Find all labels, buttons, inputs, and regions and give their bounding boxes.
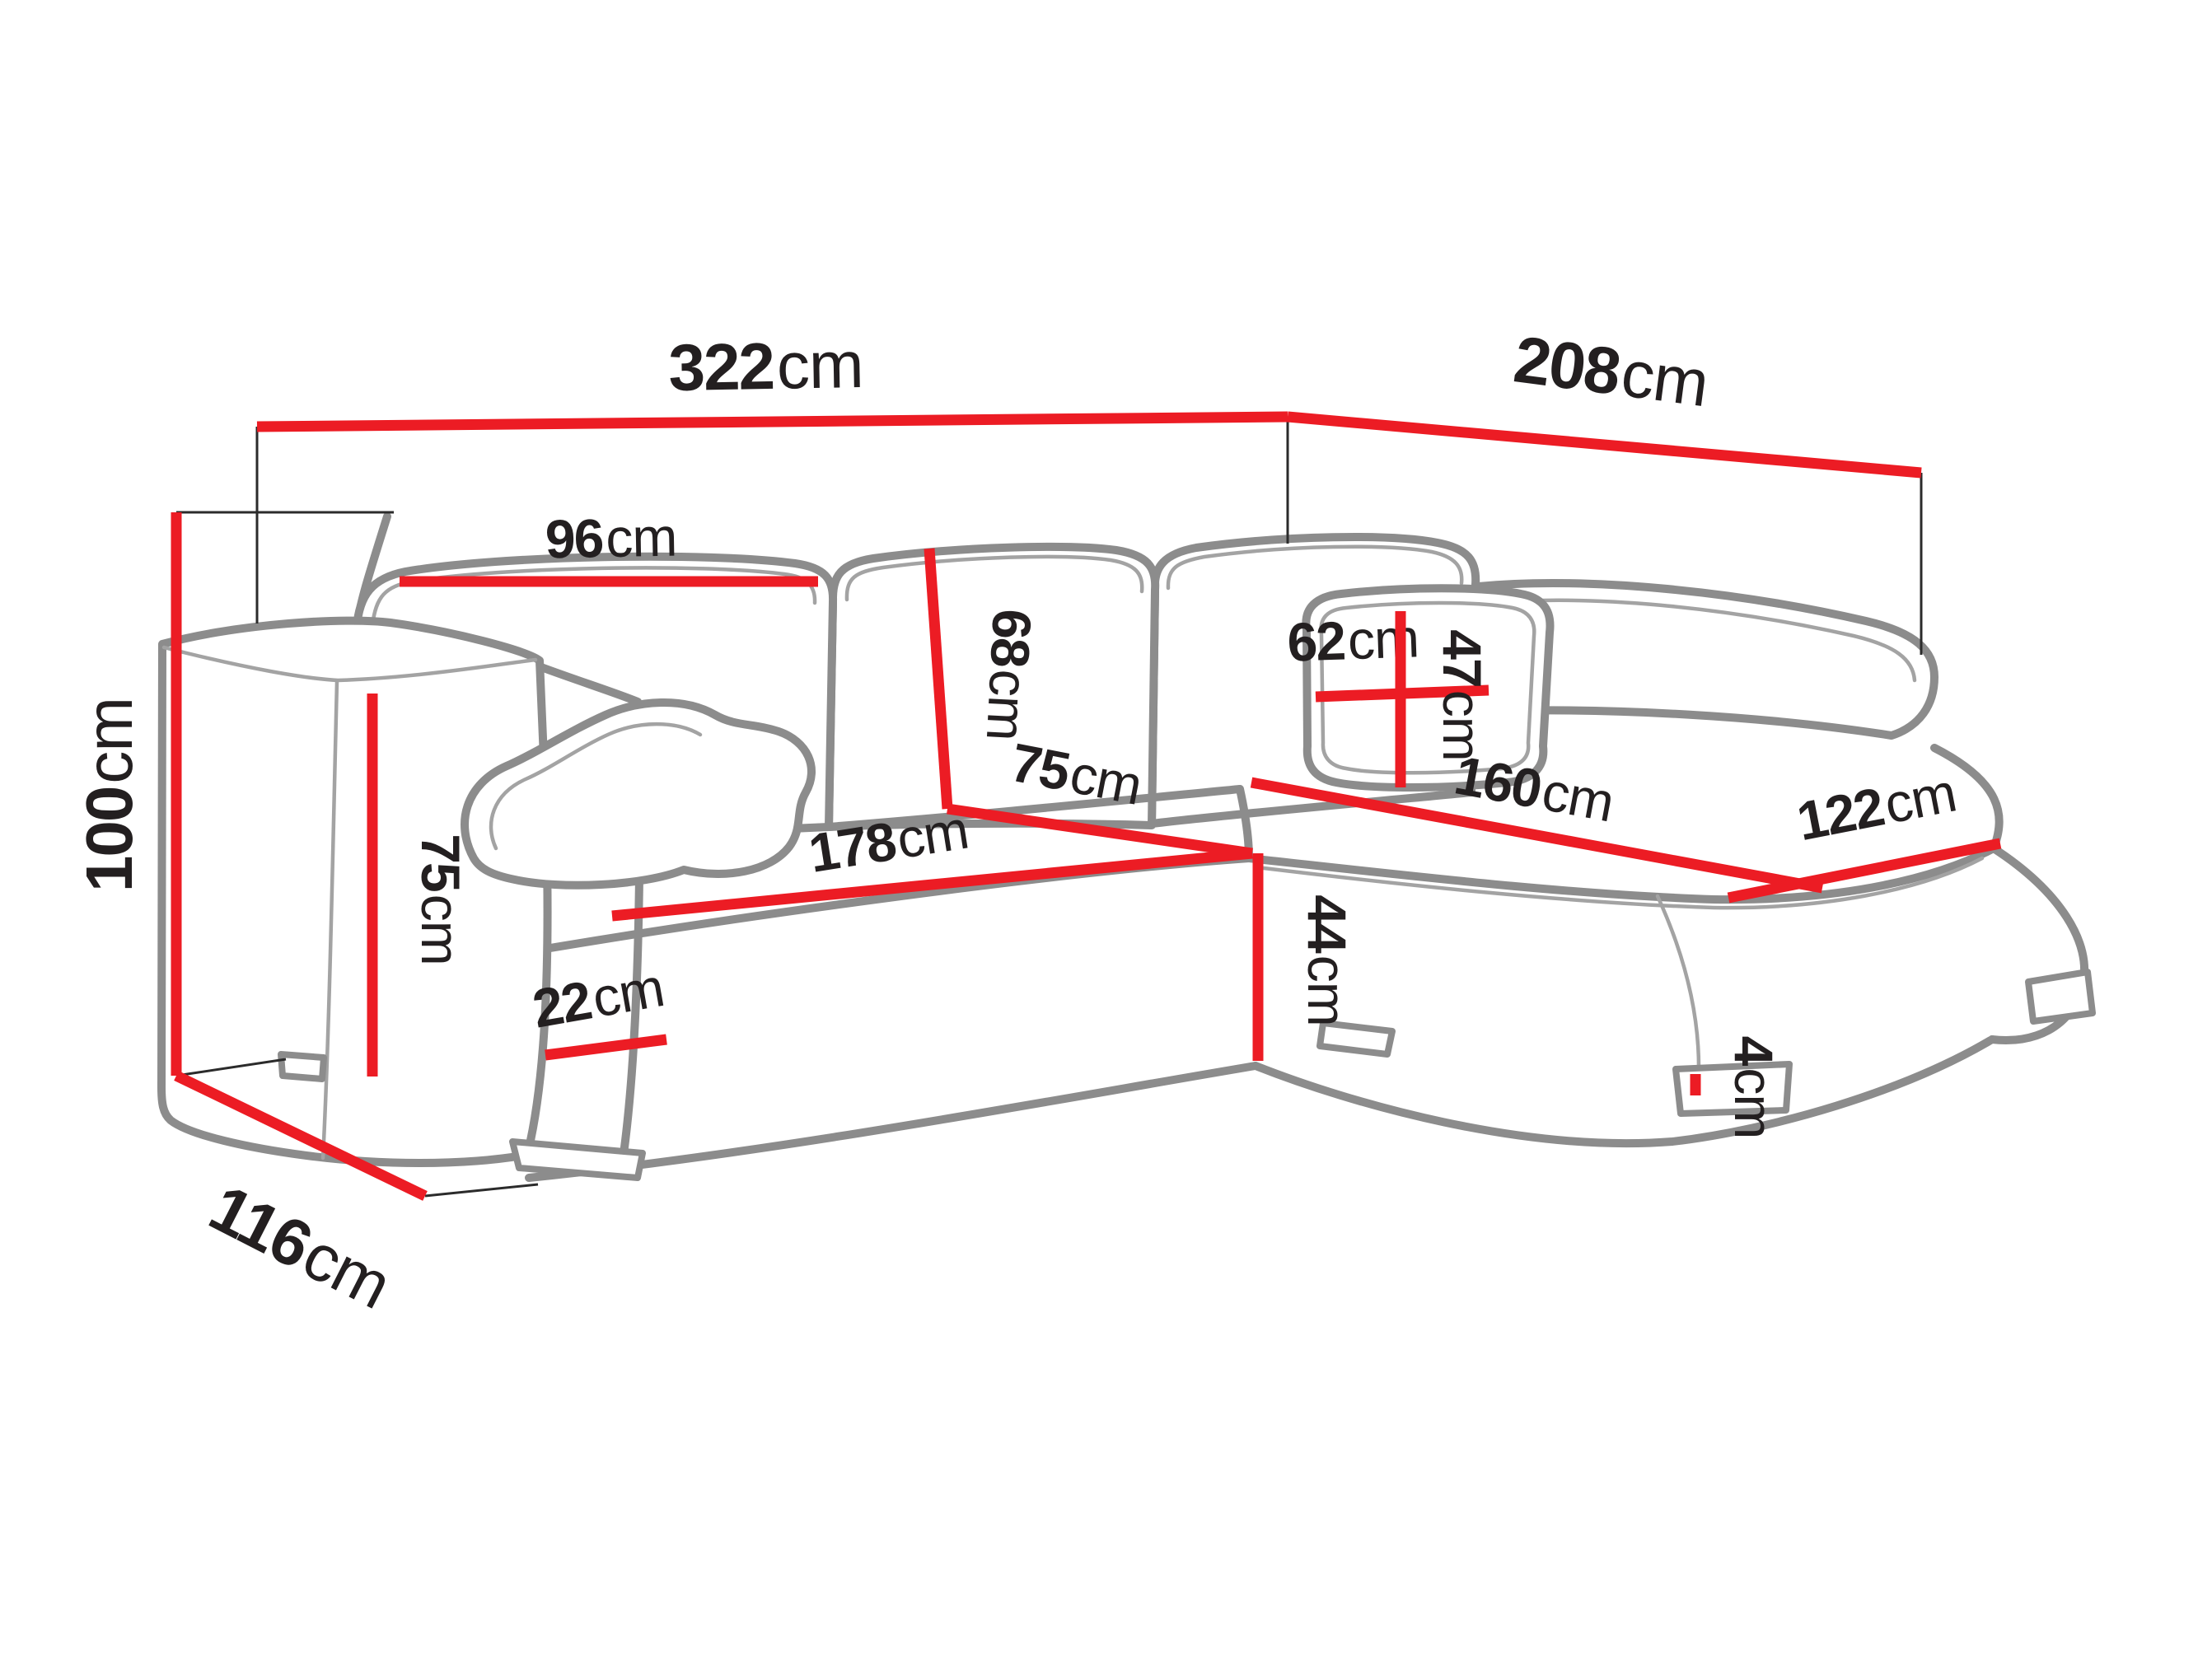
diagram-canvas: 322cm 208cm 100cm 116cm 96cm 68cm 75cm 1… bbox=[0, 0, 2212, 1658]
chaise-front-corner-line bbox=[1658, 896, 1699, 1067]
dim-label-chaise-width: 122cm bbox=[1792, 762, 1961, 852]
leg-seat-front bbox=[1320, 1023, 1392, 1054]
dim-label-back-cushion-height: 68cm bbox=[975, 608, 1043, 742]
dim-label-armrest-height: 75cm bbox=[410, 834, 471, 964]
dim-label-total-depth: 208cm bbox=[1510, 322, 1713, 420]
dim-line-total-depth bbox=[1288, 417, 1921, 473]
dim-label-total-height: 100cm bbox=[72, 698, 146, 892]
dim-label-leg-height: 4cm bbox=[1723, 1036, 1784, 1139]
ext-base-depth-bottom bbox=[425, 1184, 538, 1196]
leg-back-left bbox=[281, 1054, 324, 1079]
dim-label-back-cushion-width: 96cm bbox=[545, 507, 677, 570]
dim-label-seat-height: 44cm bbox=[1297, 894, 1358, 1025]
dim-label-base-depth: 116cm bbox=[199, 1170, 402, 1322]
dim-label-pillow-height: 47cm bbox=[1432, 629, 1493, 760]
dim-line-total-width bbox=[257, 417, 1288, 427]
dimension-total-depth: 208cm bbox=[1288, 322, 1921, 473]
leg-chaise-right bbox=[2028, 972, 2093, 1021]
sofa-dimension-diagram: 322cm 208cm 100cm 116cm 96cm 68cm 75cm 1… bbox=[0, 0, 2212, 1658]
dimension-total-width: 322cm bbox=[257, 328, 1288, 427]
dim-line-armrest-width bbox=[545, 1039, 666, 1055]
dim-label-total-width: 322cm bbox=[668, 328, 864, 404]
armrest bbox=[161, 621, 548, 1163]
chaise-bottom-edge bbox=[1256, 1039, 1992, 1143]
